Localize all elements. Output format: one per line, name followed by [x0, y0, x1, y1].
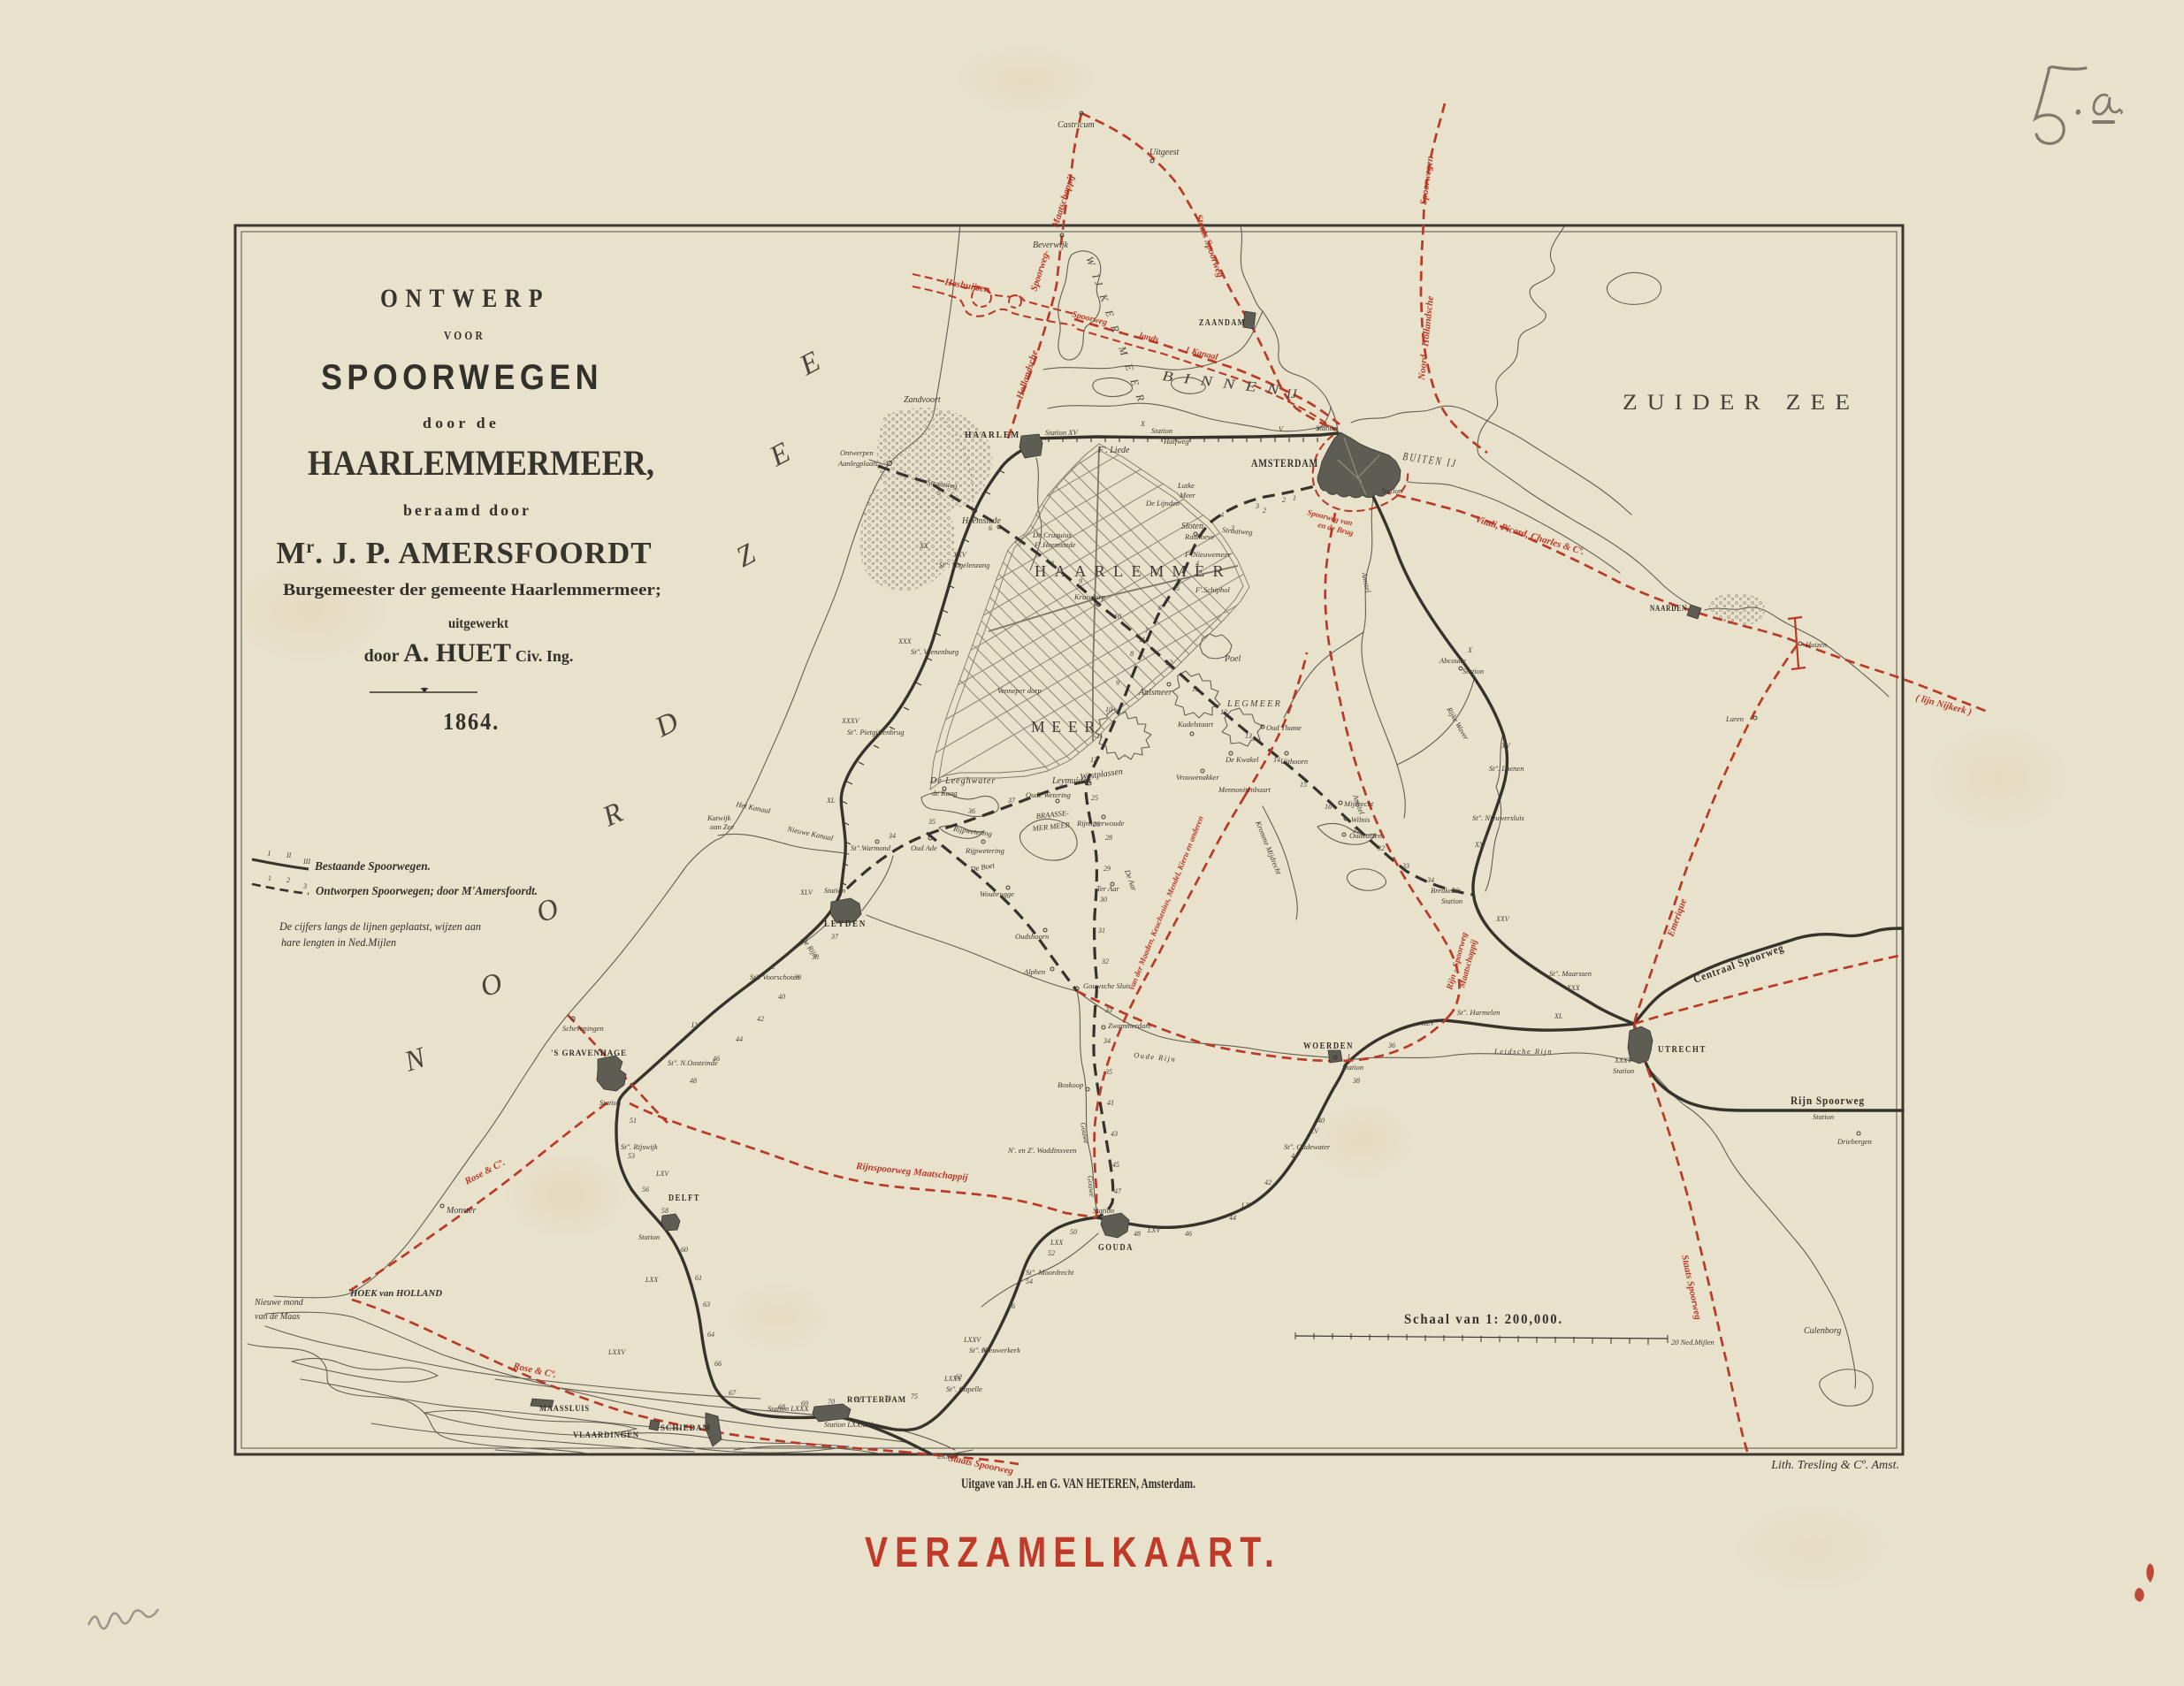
svg-text:Meer: Meer [1179, 491, 1196, 500]
svg-text:46: 46 [1185, 1230, 1192, 1238]
svg-text:52: 52 [1048, 1249, 1055, 1257]
svg-text:36: 36 [1387, 1041, 1395, 1049]
svg-text:Station: Station [1462, 667, 1484, 675]
svg-text:4: 4 [1195, 560, 1199, 568]
svg-text:3: 3 [302, 882, 307, 890]
svg-text:33: 33 [1104, 1006, 1112, 1014]
svg-text:43: 43 [1111, 1130, 1118, 1138]
svg-text:Rijnsaterwoude: Rijnsaterwoude [1076, 819, 1125, 828]
svg-text:Station LXXXIV: Station LXXXIV [824, 1420, 874, 1429]
svg-text:Stʺ. Voorschoten: Stʺ. Voorschoten [750, 973, 799, 981]
svg-text:35: 35 [1104, 1068, 1112, 1076]
svg-text:58: 58 [661, 1207, 668, 1215]
svg-text:Stʺ. Capelle: Stʺ. Capelle [946, 1385, 982, 1393]
svg-text:Fʹ.Nieuwemeer: Fʹ.Nieuwemeer [1184, 550, 1231, 559]
svg-text:38: 38 [811, 953, 819, 961]
svg-text:34: 34 [1426, 876, 1434, 884]
svg-text:54: 54 [1026, 1278, 1033, 1285]
svg-text:Zandvoort: Zandvoort [904, 395, 941, 405]
svg-text:2: 2 [1263, 507, 1266, 515]
svg-text:Radhoeve: Radhoeve [1184, 532, 1215, 541]
svg-text:56: 56 [1008, 1302, 1015, 1310]
svg-text:45: 45 [1112, 1161, 1119, 1169]
svg-text:HOEK van HOLLAND: HOEK van HOLLAND [349, 1288, 442, 1299]
svg-text:ONTWERP: ONTWERP [380, 284, 550, 313]
svg-text:van de Maas: van de Maas [255, 1312, 300, 1322]
svg-text:Stʺ.Warmond: Stʺ.Warmond [851, 843, 891, 852]
svg-text:64: 64 [707, 1331, 714, 1339]
svg-text:48: 48 [1134, 1230, 1141, 1238]
svg-text:Katwijk: Katwijk [706, 813, 731, 822]
svg-text:Nʹ. en Zʹ. Waddinxveen: Nʹ. en Zʹ. Waddinxveen [1007, 1146, 1077, 1155]
svg-text:II: II [286, 851, 292, 859]
svg-text:28: 28 [1105, 834, 1112, 842]
svg-text:De Kwakel: De Kwakel [1225, 755, 1259, 764]
svg-text:48: 48 [690, 1077, 697, 1085]
svg-text:XL: XL [1554, 1012, 1563, 1020]
svg-text:XL: XL [826, 797, 836, 805]
svg-text:aan Zee: aan Zee [710, 822, 734, 831]
svg-text:26: 26 [1093, 820, 1100, 828]
svg-text:LEYDEN: LEYDEN [824, 919, 867, 929]
svg-text:XLV: XLV [799, 889, 813, 896]
svg-text:35: 35 [928, 818, 935, 826]
svg-text:Station: Station [1613, 1066, 1634, 1075]
svg-text:LXV: LXV [655, 1170, 669, 1178]
svg-text:Uithoorn: Uithoorn [1280, 757, 1308, 766]
svg-text:Stʺ. Rijswijk: Stʺ. Rijswijk [621, 1142, 658, 1151]
svg-text:Fʹ. Liede: Fʹ. Liede [1097, 446, 1130, 455]
svg-text:Station: Station [599, 1098, 621, 1107]
svg-text:uitgewerkt: uitgewerkt [448, 616, 509, 631]
svg-text:1: 1 [268, 874, 271, 882]
svg-text:Abcoude: Abcoude [1439, 656, 1466, 665]
svg-text:12: 12 [1220, 708, 1227, 716]
svg-text:Schaal van 1: 200,000.: Schaal van 1: 200,000. [1404, 1312, 1563, 1327]
svg-text:9: 9 [1116, 679, 1119, 687]
svg-text:Castricum: Castricum [1058, 120, 1095, 130]
svg-text:36: 36 [1451, 887, 1459, 895]
svg-text:Burgemeester der gemeente Haar: Burgemeester der gemeente Haarlemmermeer… [283, 581, 661, 599]
svg-text:LEGMEER: LEGMEER [1226, 699, 1282, 709]
svg-text:66: 66 [714, 1360, 722, 1368]
svg-text:LXXV: LXXV [607, 1348, 626, 1356]
svg-text:Station: Station [1316, 423, 1337, 432]
svg-text:50: 50 [1070, 1228, 1077, 1236]
svg-text:XXX: XXX [897, 637, 913, 645]
svg-text:Uitgeest: Uitgeest [1149, 148, 1180, 157]
svg-text:Halfweg: Halfweg [1163, 437, 1189, 446]
svg-text:37: 37 [1007, 797, 1016, 805]
svg-text:13: 13 [1245, 732, 1252, 740]
svg-text:de Kaag: de Kaag [932, 789, 958, 797]
svg-text:63: 63 [703, 1301, 710, 1308]
svg-text:38: 38 [1352, 1077, 1360, 1085]
svg-text:Oud Ade: Oud Ade [911, 843, 937, 852]
svg-text:4: 4 [1220, 511, 1224, 519]
svg-text:39: 39 [793, 973, 801, 981]
svg-text:Scheveningen: Scheveningen [562, 1024, 604, 1033]
svg-text:HAARLEM: HAARLEM [965, 430, 1020, 440]
svg-text:XXV: XXV [952, 551, 967, 559]
svg-text:LX: LX [1241, 1202, 1250, 1209]
svg-text:Woubrugge: Woubrugge [980, 889, 1014, 898]
svg-text:41: 41 [1291, 1152, 1298, 1160]
svg-text:L: L [1347, 1053, 1352, 1061]
svg-text:XXX: XXX [1566, 984, 1581, 992]
svg-text:33: 33 [1401, 862, 1409, 870]
svg-text:5: 5 [1176, 584, 1180, 592]
svg-text:15: 15 [1300, 781, 1307, 789]
svg-text:34: 34 [1103, 1037, 1111, 1045]
svg-text:29: 29 [1103, 865, 1111, 873]
svg-text:Beverwijk: Beverwijk [1033, 240, 1069, 250]
svg-text:XLV: XLV [1421, 1019, 1435, 1027]
svg-text:Station XV: Station XV [1045, 428, 1079, 437]
svg-text:9: 9 [1079, 577, 1082, 585]
svg-text:Station: Station [824, 886, 845, 895]
svg-text:Station: Station [1441, 896, 1462, 905]
svg-text:Huizen: Huizen [1805, 640, 1827, 649]
svg-text:41: 41 [1107, 1099, 1114, 1107]
svg-text:1: 1 [1293, 494, 1296, 502]
svg-text:MEER: MEER [1031, 718, 1102, 736]
svg-text:Vrouwenakker: Vrouwenakker [1176, 773, 1219, 782]
svg-text:3: 3 [1230, 524, 1234, 532]
svg-text:53: 53 [628, 1152, 635, 1160]
svg-text:NAARDEN: NAARDEN [1650, 605, 1687, 614]
svg-text:Wilnis: Wilnis [1351, 815, 1371, 824]
svg-text:Station: Station [1381, 486, 1402, 495]
svg-text:Rijn Spoorweg: Rijn Spoorweg [1791, 1095, 1865, 1107]
svg-text:XXXV: XXXV [1614, 1057, 1633, 1064]
svg-text:12: 12 [1165, 659, 1172, 667]
svg-text:LV: LV [691, 1021, 700, 1029]
svg-text:Uitgave van J.H. en G. VAN HET: Uitgave van J.H. en G. VAN HETEREN, Amst… [961, 1476, 1195, 1491]
svg-text:HAARLEMMER: HAARLEMMER [1035, 562, 1232, 580]
svg-text:VLAARDINGEN: VLAARDINGEN [573, 1431, 639, 1440]
svg-text:De cijfers langs de lijnen gep: De cijfers langs de lijnen geplaatst, wi… [279, 920, 481, 933]
svg-text:6: 6 [1158, 604, 1162, 612]
svg-text:Leymuiden: Leymuiden [1051, 776, 1091, 786]
svg-text:Aalsmeer: Aalsmeer [1138, 688, 1172, 698]
svg-text:MAASSLUIS: MAASSLUIS [539, 1405, 590, 1414]
svg-text:Fʹ.Schiphol: Fʹ.Schiphol [1195, 585, 1231, 594]
svg-text:8: 8 [1050, 560, 1054, 568]
svg-text:Culenborg: Culenborg [1804, 1326, 1841, 1336]
svg-text:LXX: LXX [645, 1276, 659, 1284]
svg-text:XX: XX [1474, 841, 1485, 849]
svg-text:37: 37 [830, 933, 839, 941]
svg-text:Stʺ. Vogelenzang: Stʺ. Vogelenzang [939, 561, 989, 569]
svg-text:2: 2 [286, 876, 290, 884]
svg-text:70: 70 [828, 1398, 835, 1406]
svg-text:Stʺ. Loenen: Stʺ. Loenen [1489, 764, 1523, 773]
svg-text:12: 12 [1090, 756, 1097, 764]
svg-text:LV: LV [1310, 1127, 1319, 1135]
svg-text:Nieuwe mond: Nieuwe mond [254, 1298, 304, 1308]
svg-text:42: 42 [757, 1015, 764, 1023]
svg-text:Station: Station [1151, 426, 1172, 435]
svg-text:Oude Wetering: Oude Wetering [1026, 790, 1071, 799]
svg-text:60: 60 [981, 1347, 989, 1354]
svg-text:XX: XX [919, 542, 929, 550]
svg-text:Mennonitenbuurt: Mennonitenbuurt [1218, 785, 1271, 794]
svg-text:Monster: Monster [446, 1206, 476, 1216]
svg-text:Ontworpen Spoorwegen; door MʹA: Ontworpen Spoorwegen; door MʹAmersfoordt… [316, 885, 538, 898]
svg-text:Boskoop: Boskoop [1058, 1080, 1083, 1089]
svg-text:20 Ned.Mijlen: 20 Ned.Mijlen [1671, 1338, 1714, 1347]
svg-text:73: 73 [884, 1394, 891, 1402]
svg-text:Stʺ. Pietgijzenbrug: Stʺ. Pietgijzenbrug [847, 728, 904, 736]
svg-text:GOUDA: GOUDA [1098, 1242, 1134, 1253]
svg-text:14: 14 [1273, 756, 1280, 764]
svg-text:HAARLEMMERMEER,: HAARLEMMERMEER, [308, 443, 654, 483]
svg-text:LXV: LXV [1147, 1226, 1161, 1234]
svg-text:42: 42 [1264, 1179, 1271, 1186]
svg-text:Fʹ.Heemstede: Fʹ.Heemstede [1034, 540, 1076, 549]
svg-text:SPOORWEGEN: SPOORWEGEN [321, 358, 603, 397]
svg-text:IJ: IJ [1286, 387, 1298, 401]
svg-text:Station: Station [1813, 1112, 1834, 1121]
svg-text:10: 10 [1105, 706, 1112, 713]
svg-text:1864.: 1864. [443, 708, 500, 735]
svg-text:Stʺ. Moordrecht: Stʺ. Moordrecht [1026, 1268, 1074, 1277]
svg-text:VERZAMELKAART.: VERZAMELKAART. [865, 1530, 1281, 1576]
svg-text:Stʺ. Nieuwersluis: Stʺ. Nieuwersluis [1472, 813, 1525, 822]
svg-text:SCHIEDAM: SCHIEDAM [661, 1424, 711, 1433]
svg-text:Lith. Tresling & Cº. Amst.: Lith. Tresling & Cº. Amst. [1770, 1459, 1899, 1472]
svg-text:'S GRAVENHAGE: 'S GRAVENHAGE [551, 1049, 627, 1058]
svg-text:Rijpwetering: Rijpwetering [965, 846, 1004, 855]
svg-text:Station: Station [1342, 1063, 1363, 1072]
svg-text:68: 68 [778, 1403, 785, 1411]
svg-text:72: 72 [854, 1396, 861, 1404]
svg-text:46: 46 [713, 1055, 720, 1063]
svg-text:De Leeghwater: De Leeghwater [929, 776, 996, 786]
svg-text:Bestaande Spoorwegen.: Bestaande Spoorwegen. [314, 860, 431, 874]
svg-text:Stʺ. N.Oosteinde: Stʺ. N.Oosteinde [668, 1058, 718, 1067]
svg-text:Sloten: Sloten [1181, 522, 1203, 531]
svg-text:11: 11 [1096, 732, 1103, 740]
svg-text:Ter Aar: Ter Aar [1096, 884, 1119, 893]
svg-text:ZUIDER ZEE: ZUIDER ZEE [1623, 391, 1859, 415]
svg-text:44: 44 [736, 1035, 743, 1043]
svg-text:10: 10 [1114, 613, 1121, 621]
svg-text:3: 3 [1255, 502, 1259, 510]
svg-text:11: 11 [1139, 636, 1145, 644]
svg-text:75: 75 [911, 1392, 918, 1400]
svg-text:47: 47 [1114, 1187, 1122, 1195]
svg-text:Zwammerdam: Zwammerdam [1108, 1021, 1150, 1030]
svg-text:door de: door de [423, 415, 500, 431]
svg-text:XXV: XXV [1495, 915, 1510, 923]
svg-text:Kruisdorp: Kruisdorp [1073, 592, 1105, 601]
svg-text:51: 51 [630, 1117, 637, 1125]
svg-text:LXX: LXX [1050, 1239, 1064, 1247]
svg-text:31: 31 [1097, 927, 1105, 935]
svg-text:44: 44 [1229, 1214, 1236, 1222]
svg-text:Kudelstaart: Kudelstaart [1177, 720, 1214, 729]
svg-text:Gouwsche Sluis: Gouwsche Sluis [1083, 981, 1132, 990]
svg-text:Mr. J. P. AMERSFOORDT: Mr. J. P. AMERSFOORDT [276, 536, 652, 570]
svg-text:Venneper dorp: Venneper dorp [997, 686, 1042, 695]
svg-text:Oudshoorn: Oudshoorn [1015, 932, 1049, 941]
svg-text:XXXV: XXXV [841, 717, 860, 725]
svg-text:Station: Station [1093, 1206, 1114, 1215]
svg-text:L: L [770, 963, 775, 971]
svg-text:De Lijnden: De Lijnden [1145, 499, 1180, 507]
svg-text:36: 36 [967, 807, 975, 815]
svg-text:Stʺ. Nieuwerkerk: Stʺ. Nieuwerkerk [969, 1346, 1020, 1354]
svg-text:UTRECHT: UTRECHT [1658, 1044, 1707, 1055]
svg-text:Stʺ. Veenenburg: Stʺ. Veenenburg [911, 647, 958, 656]
svg-text:WOERDEN: WOERDEN [1303, 1041, 1354, 1051]
svg-text:67: 67 [729, 1389, 737, 1397]
svg-text:Aanlegplaats: Aanlegplaats [837, 459, 879, 468]
svg-text:I: I [267, 850, 271, 858]
svg-text:Station: Station [638, 1232, 660, 1241]
svg-text:Poel: Poel [1224, 654, 1241, 664]
svg-text:De Cruquius: De Cruquius [1032, 530, 1072, 539]
svg-text:Heemstede: Heemstede [961, 516, 1001, 526]
svg-text:56: 56 [642, 1186, 649, 1194]
svg-text:Leidsche Rijn: Leidsche Rijn [1493, 1047, 1553, 1056]
svg-text:62: 62 [955, 1373, 962, 1381]
svg-text:25: 25 [1091, 794, 1098, 802]
svg-text:31: 31 [1352, 827, 1360, 835]
svg-text:ZAANDAM: ZAANDAM [1199, 317, 1246, 328]
svg-text:beraamd door: beraamd door [403, 501, 531, 519]
svg-text:2: 2 [1282, 496, 1286, 504]
svg-text:8: 8 [1130, 650, 1134, 658]
svg-text:40: 40 [778, 993, 785, 1001]
svg-text:Alphen: Alphen [1023, 967, 1045, 976]
svg-text:LXXV: LXXV [963, 1336, 981, 1344]
svg-text:6: 6 [989, 524, 992, 532]
svg-text:32: 32 [1101, 957, 1109, 965]
svg-text:60: 60 [681, 1246, 688, 1254]
svg-text:5: 5 [937, 489, 941, 497]
svg-text:Stʺ. Harmelen: Stʺ. Harmelen [1457, 1008, 1500, 1017]
svg-text:III: III [302, 858, 310, 866]
svg-text:30: 30 [1099, 896, 1107, 904]
svg-text:Driebergen: Driebergen [1837, 1137, 1872, 1146]
svg-text:Lutke: Lutke [1177, 481, 1195, 490]
svg-text:AMSTERDAM: AMSTERDAM [1251, 456, 1318, 469]
svg-text:DELFT: DELFT [668, 1193, 700, 1203]
svg-text:34: 34 [888, 832, 896, 840]
svg-text:Oud Thame: Oud Thame [1266, 723, 1302, 732]
svg-text:16: 16 [1325, 803, 1332, 811]
svg-text:11: 11 [1192, 685, 1198, 693]
svg-text:Stʺ. Maarssen: Stʺ. Maarssen [1549, 969, 1592, 978]
svg-text:VOOR: VOOR [444, 330, 485, 343]
svg-text:69: 69 [801, 1400, 808, 1408]
svg-text:Ontwerpen: Ontwerpen [840, 448, 874, 457]
svg-text:61: 61 [695, 1274, 702, 1282]
svg-text:Laren: Laren [1725, 714, 1744, 723]
svg-text:32: 32 [1377, 844, 1385, 852]
svg-text:Stʺ. Oudewater: Stʺ. Oudewater [1284, 1142, 1331, 1151]
svg-text:hare lengten in Ned.Mijlen: hare lengten in Ned.Mijlen [281, 936, 396, 949]
svg-text:40: 40 [1317, 1117, 1325, 1125]
svg-text:XV: XV [1501, 742, 1511, 750]
